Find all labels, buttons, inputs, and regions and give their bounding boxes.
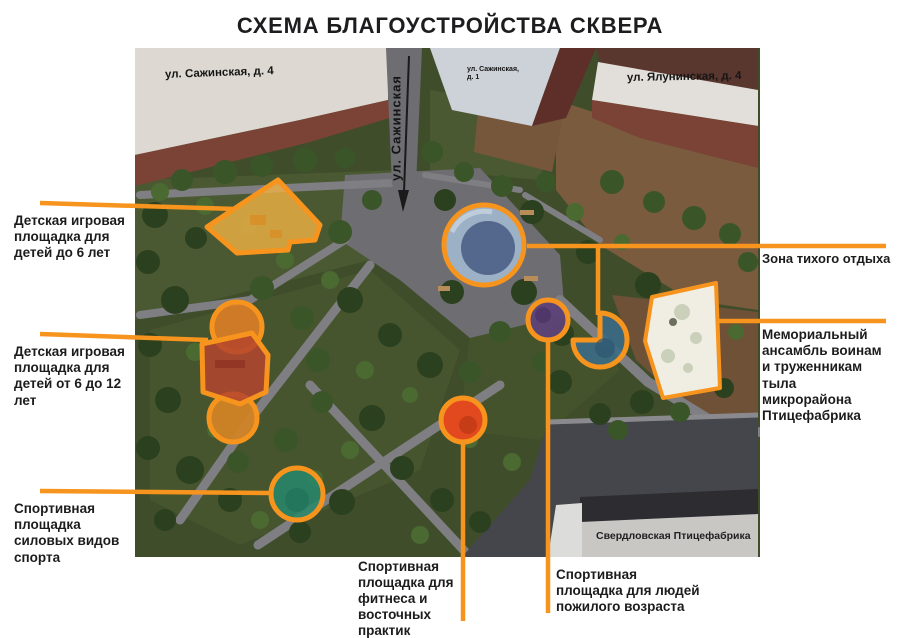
street-label-yaluninskaya-4: ул. Ялунинская, д. 4: [627, 70, 742, 84]
callout-play-6-12: Детская игровая площадка для детей от 6 …: [14, 344, 159, 409]
callout-memorial: Мемориальный ансамбль воинам и труженник…: [762, 327, 897, 424]
callout-quiet: Зона тихого отдыха: [762, 251, 900, 267]
street-label-sazhinskaya-1: ул. Сажинская, д. 1: [467, 66, 519, 82]
scheme-page: СХЕМА БЛАГОУСТРОЙСТВА СКВЕРА: [0, 0, 900, 638]
zone-playground-6-12: [202, 333, 268, 404]
callout-play-under6: Детская игровая площадка для детей до 6 …: [14, 213, 154, 262]
factory-label: Свердловская Птицефабрика: [596, 530, 751, 542]
page-title: СХЕМА БЛАГОУСТРОЙСТВА СКВЕРА: [0, 13, 900, 39]
map-render: [135, 48, 760, 557]
callout-elderly: Спортивная площадка для людей пожилого в…: [556, 567, 731, 616]
callout-strength: Спортивная площадка силовых видов спорта: [14, 501, 154, 566]
zone-memorial: [645, 283, 720, 398]
callout-fitness: Спортивная площадка для фитнеса и восточ…: [358, 559, 473, 638]
street-label-sazhinskaya-vertical: ул. Сажинская: [389, 75, 404, 181]
